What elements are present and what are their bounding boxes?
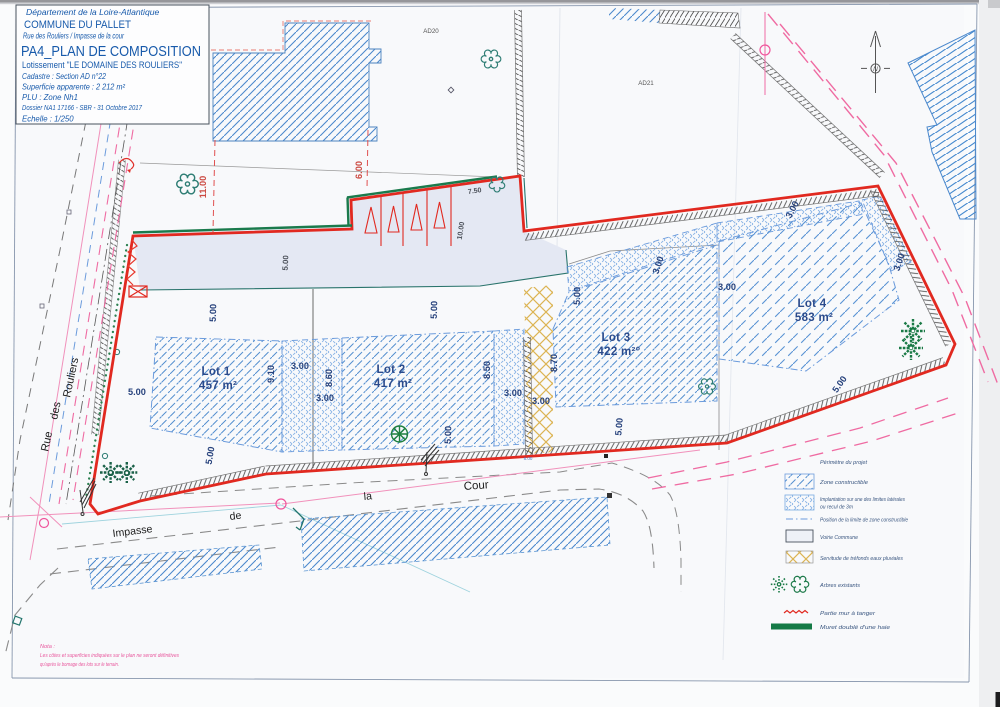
svg-text:Cour: Cour bbox=[463, 479, 489, 493]
svg-text:417 m²: 417 m² bbox=[374, 378, 412, 390]
svg-text:583 m²: 583 m² bbox=[795, 312, 833, 324]
svg-text:11.00: 11.00 bbox=[198, 176, 208, 198]
svg-text:Nota :: Nota : bbox=[40, 644, 55, 650]
svg-text:la: la bbox=[363, 490, 372, 503]
svg-text:5.00: 5.00 bbox=[572, 287, 583, 305]
svg-text:422 m²°: 422 m²° bbox=[597, 346, 640, 358]
svg-text:8.50: 8.50 bbox=[482, 361, 492, 379]
svg-text:N: N bbox=[873, 66, 878, 73]
svg-text:5.00: 5.00 bbox=[281, 254, 291, 270]
svg-text:8.00: 8.00 bbox=[524, 456, 533, 461]
svg-text:PA4_PLAN DE COMPOSITION: PA4_PLAN DE COMPOSITION bbox=[21, 44, 201, 60]
svg-text:Superficie apparente : 2 212 m: Superficie apparente : 2 212 m² bbox=[22, 83, 125, 92]
svg-text:Lot 2: Lot 2 bbox=[377, 364, 406, 376]
svg-text:Position de la limite de zone: Position de la limite de zone constructi… bbox=[820, 518, 908, 524]
svg-text:9.10: 9.10 bbox=[266, 365, 276, 383]
svg-text:6.00: 6.00 bbox=[354, 161, 364, 179]
svg-text:Lot 1: Lot 1 bbox=[202, 366, 231, 378]
svg-text:3.00: 3.00 bbox=[504, 388, 522, 398]
svg-text:PLU : Zone Nh1: PLU : Zone Nh1 bbox=[22, 93, 78, 102]
svg-text:AD21: AD21 bbox=[638, 80, 654, 87]
svg-text:Rue des Rouliers / Impasse de: Rue des Rouliers / Impasse de la cour bbox=[23, 32, 124, 41]
svg-text:3.00: 3.00 bbox=[718, 282, 736, 292]
svg-text:Servitude de tréfonds eaux plu: Servitude de tréfonds eaux pluviales bbox=[820, 556, 903, 562]
svg-text:Département de la Loire-Atlant: Département de la Loire-Atlantique bbox=[26, 7, 160, 17]
svg-text:Implantation sur une des limit: Implantation sur une des limites latéral… bbox=[820, 497, 905, 503]
svg-text:3.00: 3.00 bbox=[291, 361, 309, 371]
svg-text:8.60: 8.60 bbox=[324, 369, 334, 387]
svg-text:8.70: 8.70 bbox=[549, 354, 559, 372]
svg-text:3.00: 3.00 bbox=[316, 393, 334, 403]
svg-text:Cadastre : Section AD n°22: Cadastre : Section AD n°22 bbox=[22, 72, 107, 81]
svg-text:COMMUNE DU PALLET: COMMUNE DU PALLET bbox=[24, 19, 131, 31]
svg-text:Arbres existants: Arbres existants bbox=[819, 583, 860, 589]
svg-text:3.00: 3.00 bbox=[532, 396, 550, 406]
svg-text:Lot 3: Lot 3 bbox=[602, 332, 631, 344]
svg-text:5.00: 5.00 bbox=[443, 426, 454, 444]
svg-text:Voirie Commune: Voirie Commune bbox=[820, 535, 858, 541]
svg-text:Périmètre du projet: Périmètre du projet bbox=[820, 460, 867, 466]
svg-text:5.00: 5.00 bbox=[208, 304, 219, 322]
svg-text:Zone constructible: Zone constructible bbox=[819, 480, 868, 486]
svg-text:5.00: 5.00 bbox=[613, 417, 625, 436]
svg-text:de: de bbox=[229, 510, 242, 523]
svg-text:Lot 4: Lot 4 bbox=[798, 298, 827, 310]
svg-text:Lotissement "LE DOMAINE DES RO: Lotissement "LE DOMAINE DES ROULIERS" bbox=[22, 60, 182, 70]
svg-text:Partie mur à tanger: Partie mur à tanger bbox=[820, 611, 876, 617]
svg-text:Dossier NA1 17166 - SBR - 31 O: Dossier NA1 17166 - SBR - 31 Octobre 201… bbox=[22, 105, 143, 112]
svg-text:Muret doublé d'une haie: Muret doublé d'une haie bbox=[820, 625, 890, 631]
svg-text:5.00: 5.00 bbox=[128, 387, 146, 397]
svg-text:qu'après le bornage des lots s: qu'après le bornage des lots sur le terr… bbox=[40, 662, 119, 668]
svg-text:5.00: 5.00 bbox=[429, 301, 440, 319]
svg-text:ou recul de 3m: ou recul de 3m bbox=[820, 505, 853, 511]
svg-text:457 m²: 457 m² bbox=[199, 380, 237, 392]
svg-text:Echelle : 1/250: Echelle : 1/250 bbox=[22, 115, 74, 124]
svg-text:Les côtes et superficies indiq: Les côtes et superficies indiquées sur l… bbox=[40, 653, 179, 659]
svg-text:AD20: AD20 bbox=[423, 28, 439, 35]
